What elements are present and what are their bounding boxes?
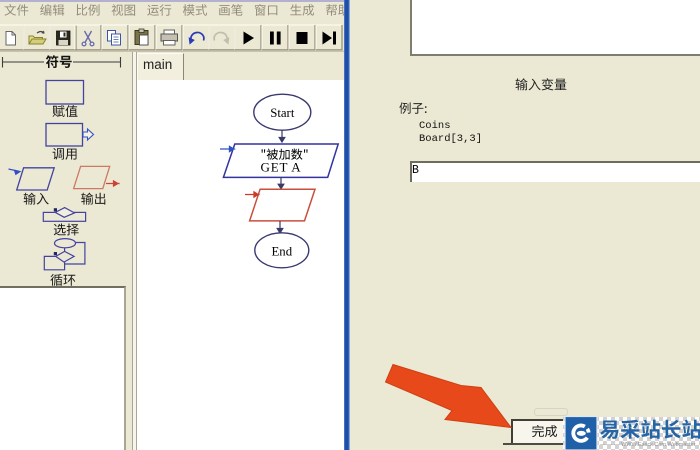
svg-text:— — — WWW.Easck.Com Webmaste: — — — WWW.Easck.Com Webmaster bbox=[600, 442, 696, 448]
